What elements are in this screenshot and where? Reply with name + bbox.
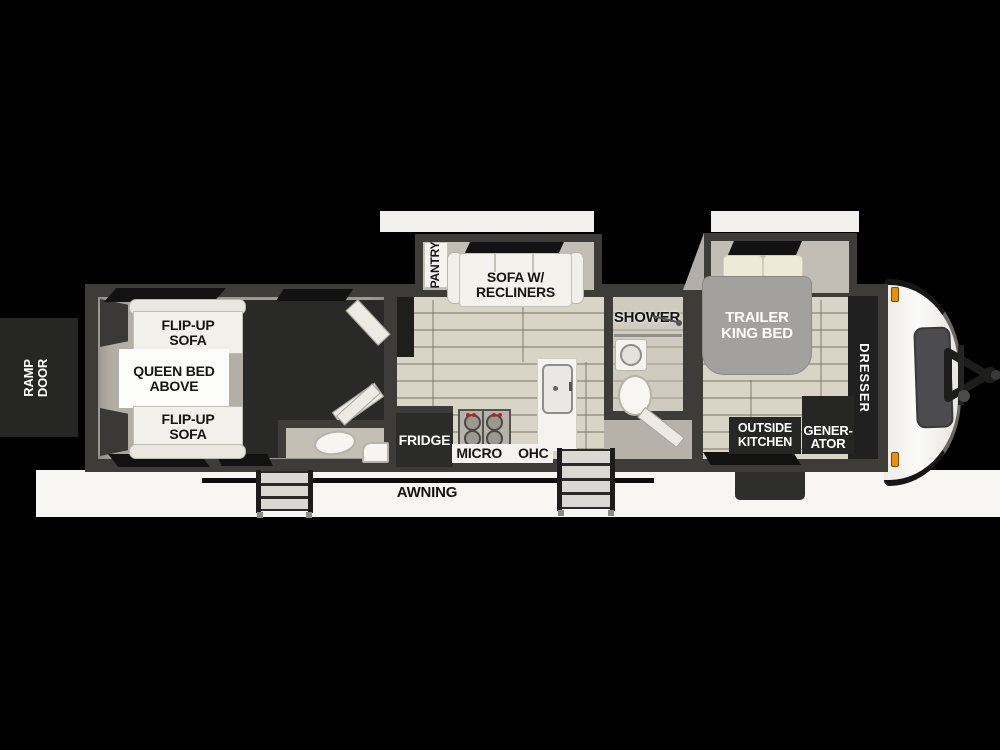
entry-steps-garage: [256, 470, 313, 518]
stove-knob-icon: [492, 413, 496, 417]
step-foot: [257, 512, 263, 518]
ohc-label: OHC: [518, 446, 549, 461]
entry-steps-main: [557, 448, 615, 516]
canvas-band-sofa-slide: [380, 211, 594, 232]
garage-window-top-right: [276, 289, 353, 301]
step-rail: [308, 470, 313, 513]
stove-knob-icon: [472, 413, 476, 417]
flip-up-sofa-bottom-arm: [129, 444, 246, 459]
bath-sink-bowl-icon: [620, 344, 642, 366]
entertainment-cabinet: [397, 297, 414, 357]
underfloor-compartment: [735, 471, 805, 500]
queen-bed-above-label: QUEEN BED ABOVE: [133, 364, 214, 393]
stove-grate-line: [482, 411, 484, 445]
sink-faucet-icon: [569, 382, 572, 391]
flip-up-sofa-bottom: FLIP-UP SOFA: [133, 406, 243, 448]
kitchen-counter: MICRO OHC: [452, 444, 553, 463]
floorplan-scene: AWNING FLIP-UP SOFA QUEEN BED ABOVE: [0, 0, 1000, 750]
flip-up-sofa-bottom-label: FLIP-UP SOFA: [161, 412, 214, 441]
stove-knob-icon: [498, 413, 502, 417]
awning-label: AWNING: [372, 485, 482, 501]
shower-label: SHOWER: [607, 310, 687, 326]
step-foot: [608, 510, 614, 516]
floor-seam: [585, 362, 587, 456]
sofa-with-recliners-label: SOFA W/ RECLINERS: [460, 270, 571, 299]
canvas-band-bed-slide: [711, 211, 859, 232]
ramp-interior-shade-bottom: [100, 408, 128, 456]
hitch-icon: [944, 338, 1000, 412]
micro-label: MICRO: [456, 446, 502, 461]
clearance-light-top-icon: [891, 287, 899, 302]
generator: GENER- ATOR: [802, 396, 854, 454]
ramp-interior-shade-top: [100, 299, 128, 347]
dresser-label: DRESSER: [857, 298, 871, 458]
trailer-king-bed-label: TRAILER KING BED: [721, 310, 793, 342]
shower-glass: [614, 334, 682, 337]
ramp-door-label: RAMP DOOR: [22, 323, 49, 433]
pantry: PANTRY: [424, 242, 448, 288]
step-treads: [562, 449, 610, 509]
ramp-door: RAMP DOOR: [0, 318, 78, 437]
pantry-label: PANTRY: [429, 241, 442, 289]
queen-bed-above-box: QUEEN BED ABOVE: [119, 349, 229, 408]
outside-kitchen: OUTSIDE KITCHEN: [729, 417, 801, 454]
half-bath-sink: [362, 442, 389, 463]
stove-knob-icon: [466, 413, 470, 417]
generator-label: GENER- ATOR: [803, 424, 852, 451]
step-rail: [610, 448, 615, 511]
fridge: FRIDGE: [396, 406, 453, 467]
bedroom-slide-window: [728, 241, 802, 255]
sink-drain-icon: [553, 386, 558, 391]
step-treads: [261, 471, 308, 511]
outside-kitchen-label: OUTSIDE KITCHEN: [738, 422, 792, 448]
shower-head-icon: [676, 320, 682, 326]
clearance-light-bottom-icon: [891, 452, 899, 467]
trailer-king-bed: TRAILER KING BED: [702, 276, 812, 375]
flip-up-sofa-top: FLIP-UP SOFA: [133, 311, 243, 354]
bedroom-slide-chamfer: [683, 233, 704, 290]
step-foot: [306, 512, 312, 518]
floor-seam: [820, 300, 822, 396]
sofa-with-recliners: SOFA W/ RECLINERS: [459, 253, 572, 307]
flip-up-sofa-top-label: FLIP-UP SOFA: [161, 318, 214, 347]
fridge-label: FRIDGE: [399, 433, 451, 448]
step-foot: [558, 510, 564, 516]
floor-seam: [522, 300, 524, 362]
